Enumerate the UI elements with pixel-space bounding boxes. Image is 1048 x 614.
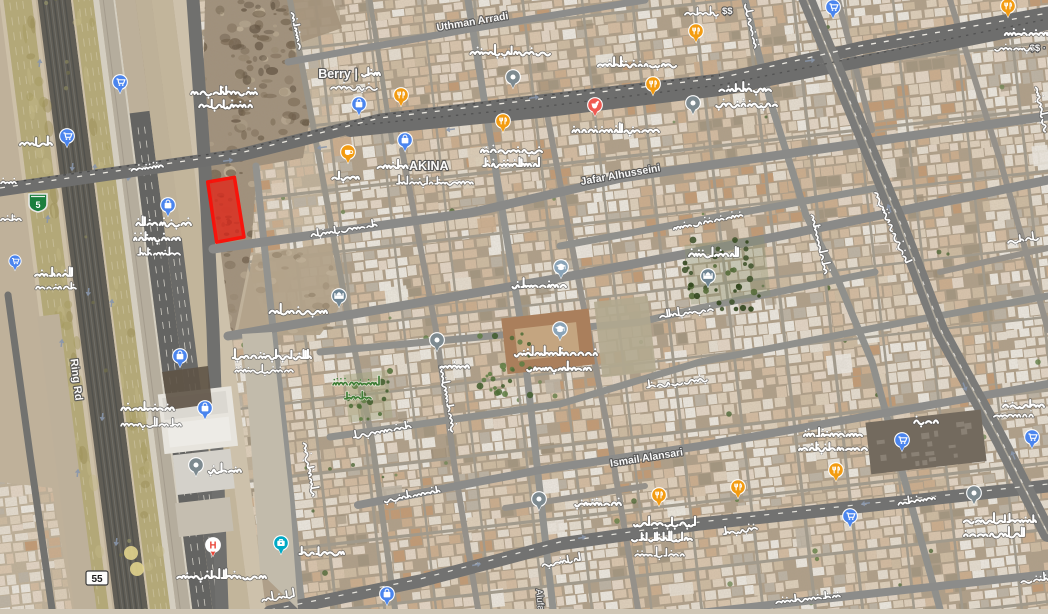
svg-text:AKINA: AKINA (409, 159, 449, 173)
svg-text:Berry |: Berry | (318, 67, 358, 81)
svg-text:H: H (210, 541, 217, 552)
svg-text:55: 55 (91, 574, 103, 585)
svg-text:5: 5 (35, 200, 40, 210)
svg-text:$$: $$ (722, 6, 733, 17)
svg-text:Alufa: Alufa (533, 589, 546, 609)
